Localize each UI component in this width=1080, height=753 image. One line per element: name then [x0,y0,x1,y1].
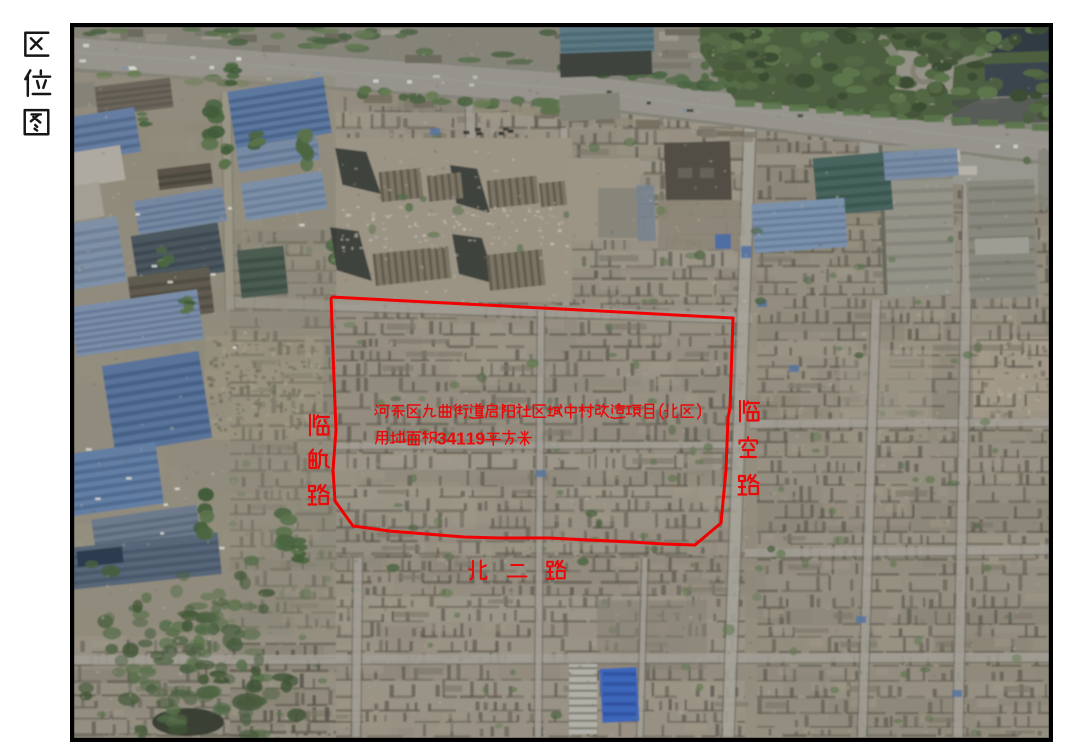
svg-text:4: 4 [446,429,456,449]
svg-text:1: 1 [466,429,476,449]
svg-text:3: 3 [437,429,447,449]
svg-text:1: 1 [456,429,466,449]
svg-text:9: 9 [475,429,485,449]
